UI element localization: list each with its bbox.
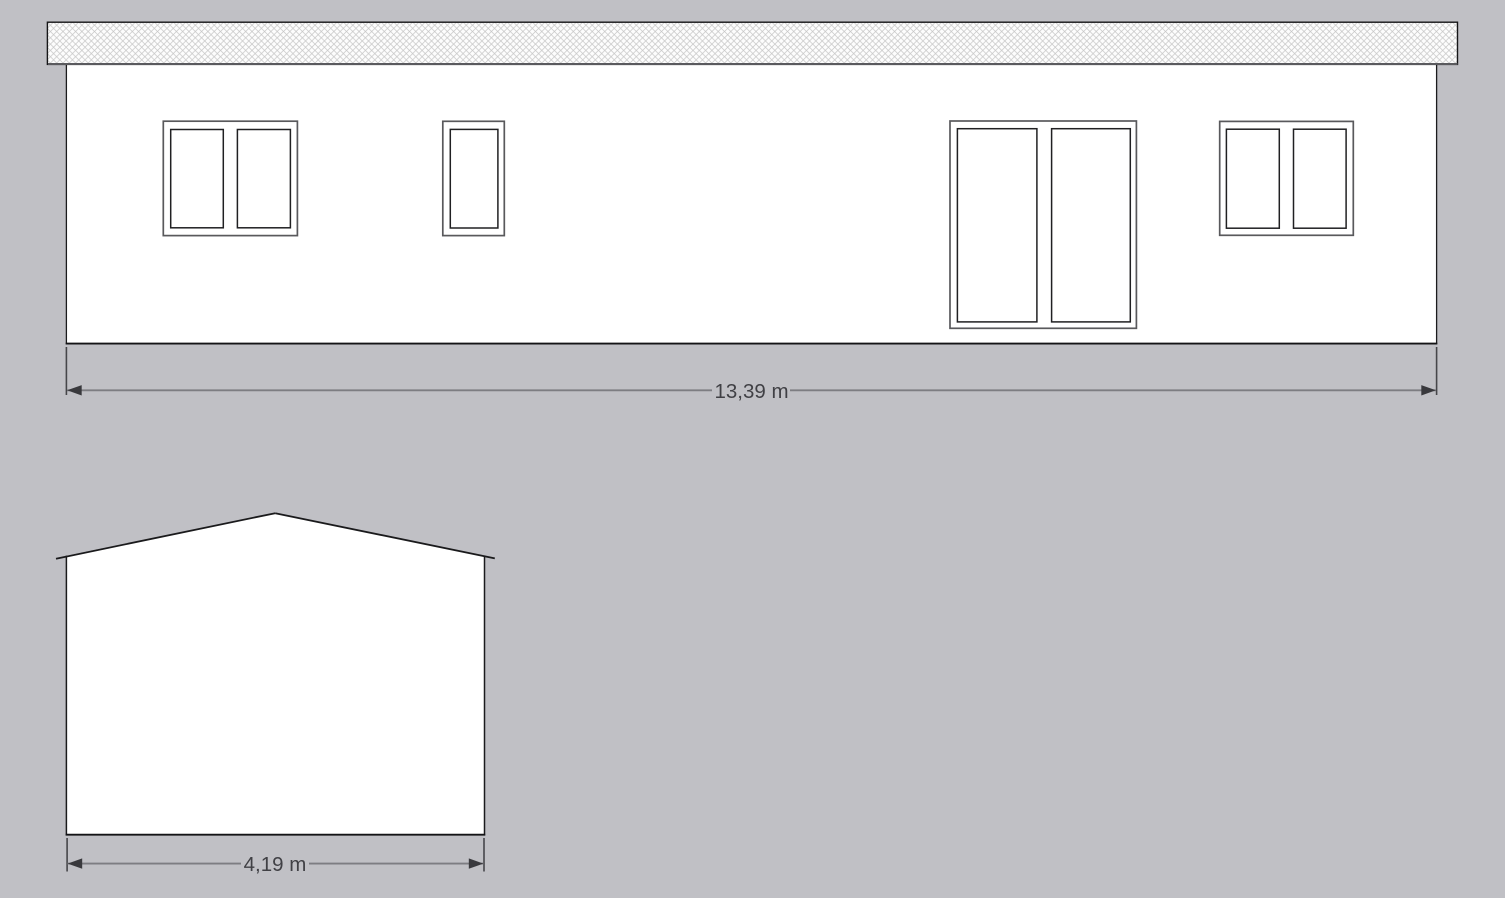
svg-text:13,39 m: 13,39 m — [714, 380, 788, 403]
svg-text:4,19 m: 4,19 m — [244, 853, 307, 876]
